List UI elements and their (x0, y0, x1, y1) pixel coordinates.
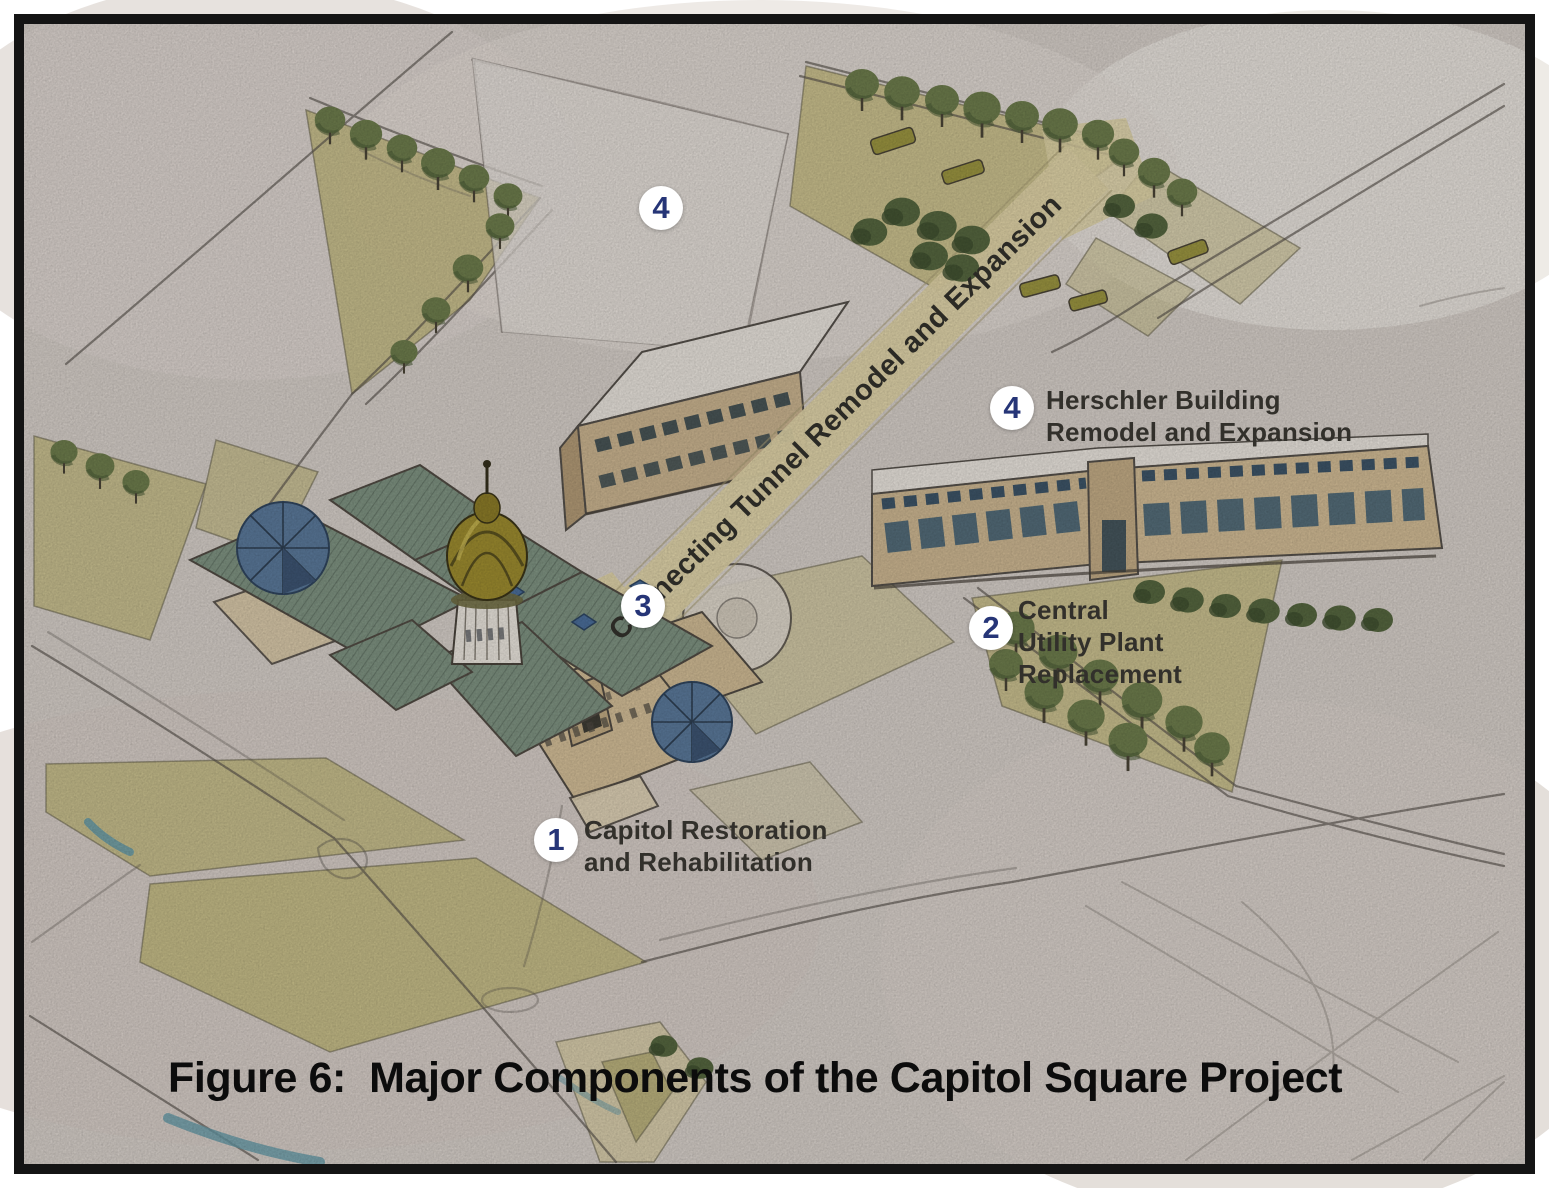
figure-page: 4 3 4 2 1 Herschler Building Remodel and… (0, 0, 1549, 1188)
marker-1-capitol: 1 (534, 818, 578, 862)
marker-4-herschler: 4 (990, 386, 1034, 430)
paper-grain-texture (20, 20, 1529, 1168)
label-capitol-restoration: Capitol Restoration and Rehabilitation (584, 814, 828, 878)
label-central-utility-plant: Central Utility Plant Replacement (1018, 594, 1182, 691)
marker-3-tunnel: 3 (621, 584, 665, 628)
label-herschler-building: Herschler Building Remodel and Expansion (1046, 384, 1352, 448)
marker-4-north-block: 4 (639, 186, 683, 230)
figure-caption: Figure 6: Major Components of the Capito… (168, 1054, 1342, 1103)
scene-illustration (0, 0, 1549, 1188)
marker-2-utility: 2 (969, 606, 1013, 650)
